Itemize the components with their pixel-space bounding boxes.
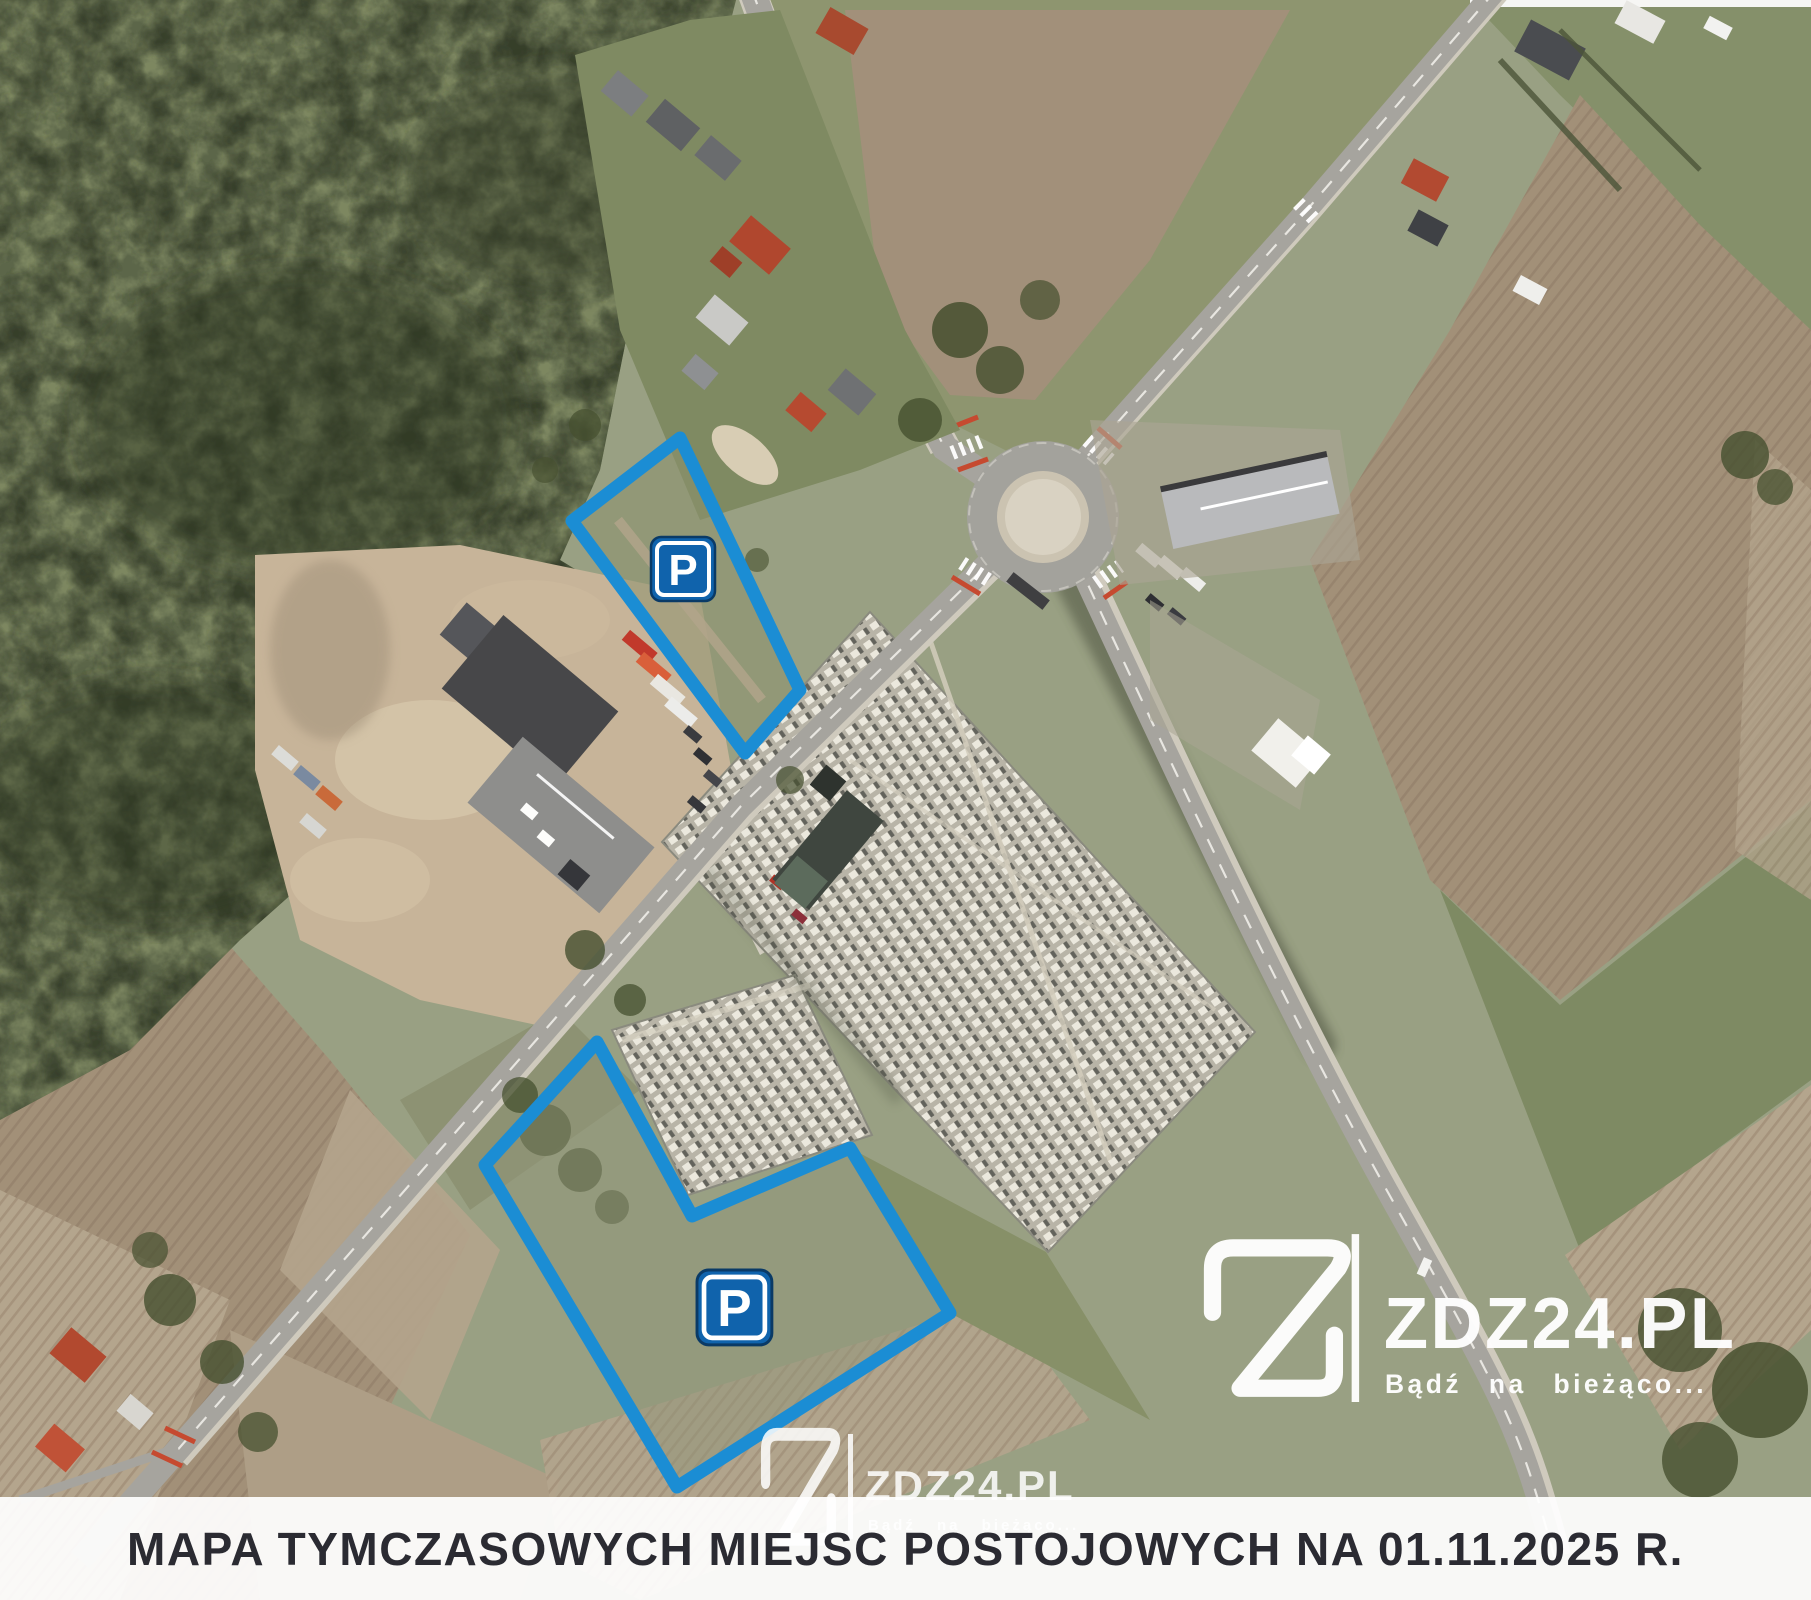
parking-sign-letter: P (668, 546, 697, 595)
service-station (1090, 420, 1360, 585)
aerial-map: P P ZDZ24.PL Bądź na bieżąco... ZDZ24.PL… (0, 0, 1811, 1600)
parking-sign-letter: P (717, 1279, 751, 1337)
watermark-tagline: Bądź na bieżąco... (1385, 1369, 1707, 1399)
map-screenshot: P P ZDZ24.PL Bądź na bieżąco... ZDZ24.PL… (0, 0, 1811, 1600)
map-title: MAPA TYMCZASOWYCH MIEJSC POSTOJOWYCH NA … (127, 1522, 1684, 1576)
parking-sign-icon: P (697, 1270, 772, 1345)
parking-sign-icon: P (651, 537, 715, 601)
title-banner: MAPA TYMCZASOWYCH MIEJSC POSTOJOWYCH NA … (0, 1497, 1811, 1600)
watermark-brand: ZDZ24.PL (1384, 1283, 1736, 1364)
